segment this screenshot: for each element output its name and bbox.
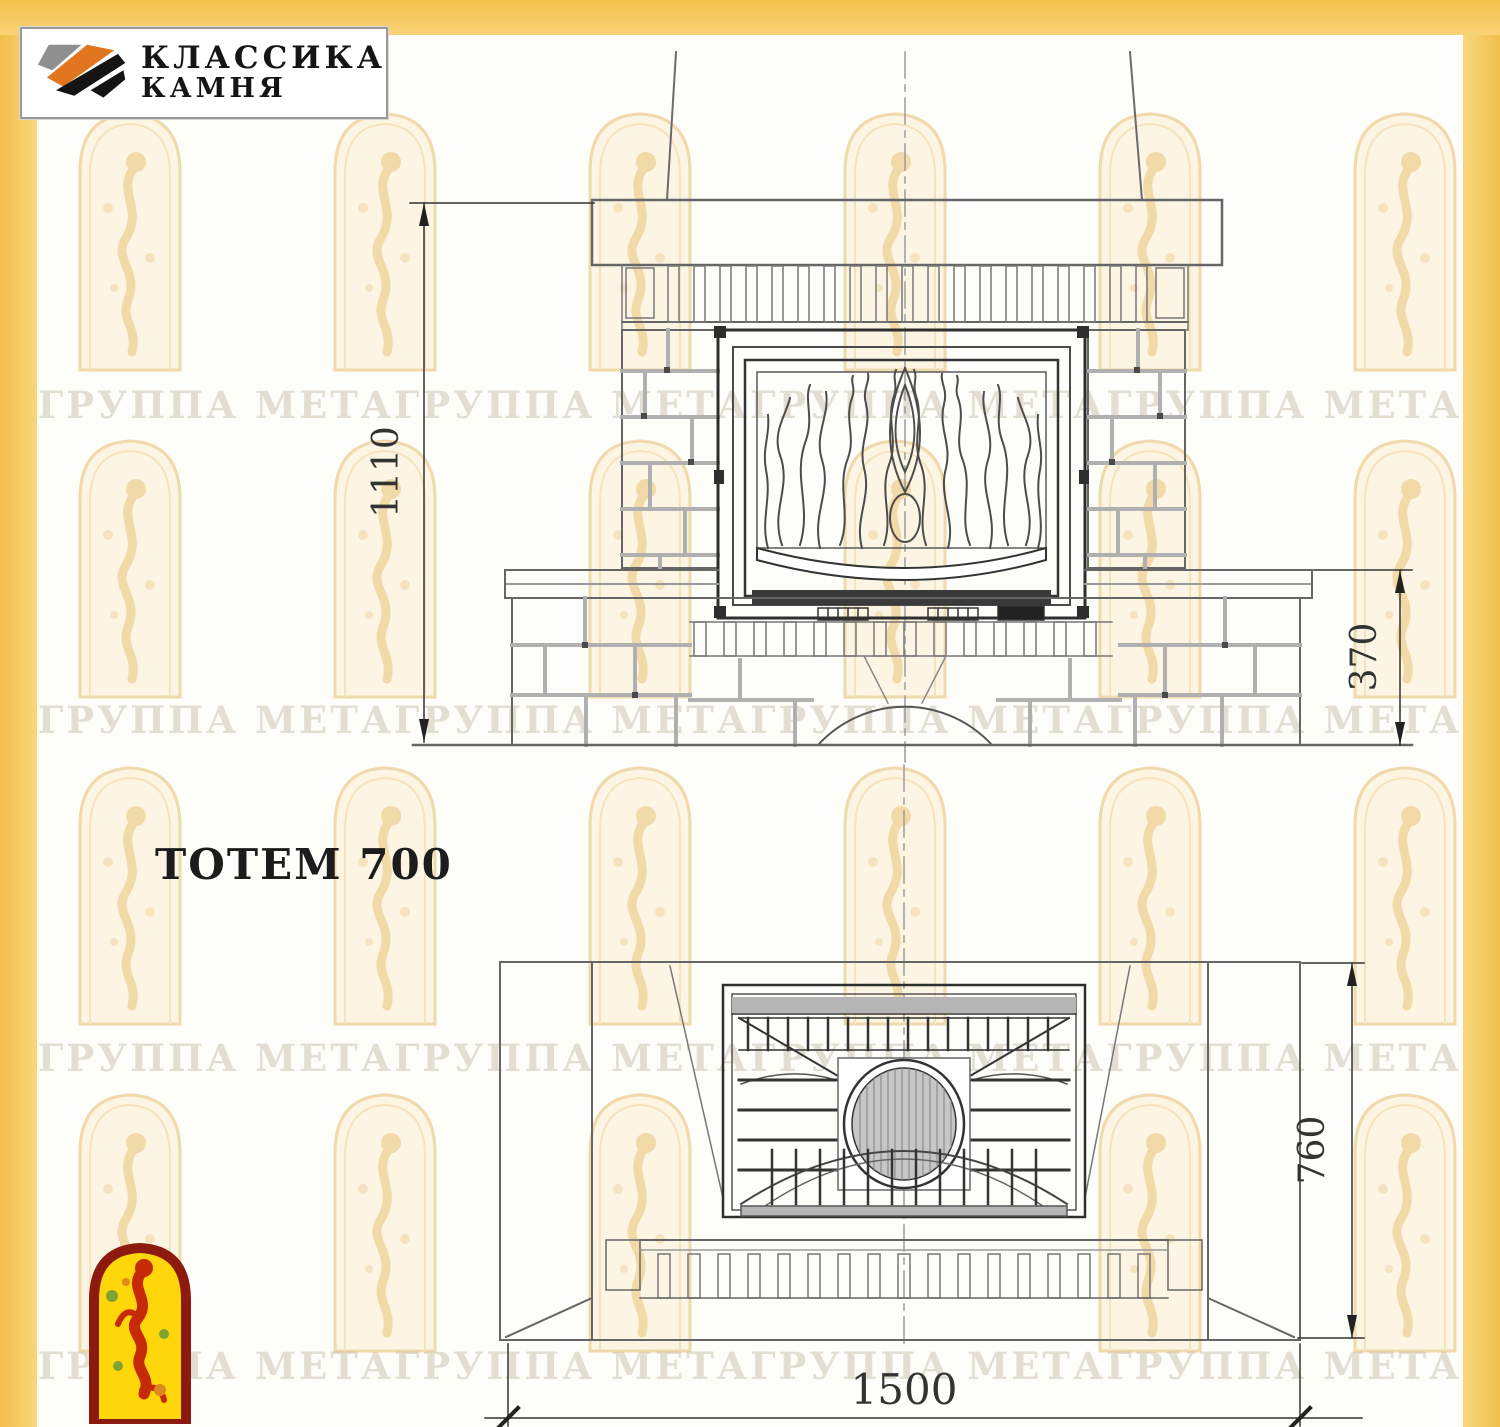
mantel-shelf bbox=[592, 200, 1222, 265]
front-elevation-drawing: 1110 370 bbox=[370, 40, 1430, 765]
dim-label-depth: 760 bbox=[1292, 1116, 1333, 1185]
base-dentil-course bbox=[690, 622, 1112, 656]
page-border-right bbox=[1463, 0, 1500, 1427]
flue-outlet bbox=[844, 1060, 964, 1188]
dimension-1110 bbox=[410, 203, 594, 742]
logo-stripes-icon bbox=[36, 41, 127, 105]
flame-grille bbox=[765, 368, 1041, 548]
hearth-lip bbox=[757, 548, 1046, 580]
firebird-emblem bbox=[84, 1238, 196, 1424]
model-title: ТОТЕМ 700 bbox=[155, 840, 453, 889]
page-border-left bbox=[0, 0, 37, 1427]
left-stone-pier bbox=[622, 330, 718, 568]
logo-line2: КАМНЯ bbox=[141, 75, 386, 103]
bench-front-plan bbox=[506, 1240, 1294, 1337]
right-stone-pier bbox=[1088, 330, 1185, 568]
firebox bbox=[714, 326, 1089, 620]
company-logo: КЛАССИКА КАМНЯ bbox=[20, 27, 388, 119]
hearth-base bbox=[512, 598, 1300, 745]
dim-label-width: 1500 bbox=[851, 1365, 958, 1414]
dim-label-height: 1110 bbox=[370, 426, 407, 518]
bottom-plan-drawing: 760 1500 bbox=[460, 760, 1400, 1427]
dim-label-plinth: 370 bbox=[1344, 623, 1385, 692]
logo-line1: КЛАССИКА bbox=[141, 43, 386, 75]
logo-text: КЛАССИКА КАМНЯ bbox=[141, 43, 386, 102]
